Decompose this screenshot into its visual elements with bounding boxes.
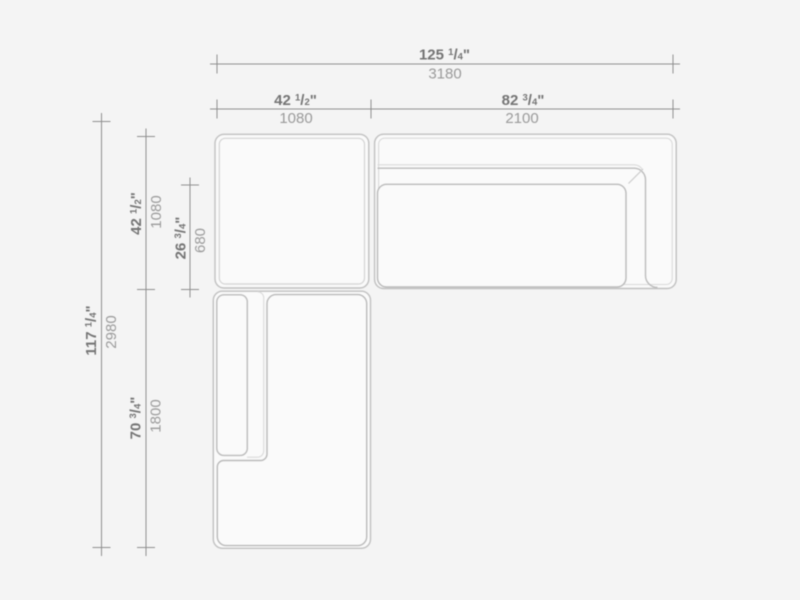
svg-text:3180: 3180 (428, 65, 461, 82)
svg-text:2980: 2980 (103, 315, 120, 348)
svg-text:117 1/4": 117 1/4" (83, 305, 100, 355)
svg-text:1800: 1800 (148, 399, 165, 432)
svg-text:1080: 1080 (148, 195, 165, 228)
svg-text:1080: 1080 (279, 110, 312, 127)
svg-text:680: 680 (192, 228, 209, 253)
svg-text:125 1/4": 125 1/4" (419, 47, 470, 64)
svg-text:2100: 2100 (505, 110, 538, 127)
